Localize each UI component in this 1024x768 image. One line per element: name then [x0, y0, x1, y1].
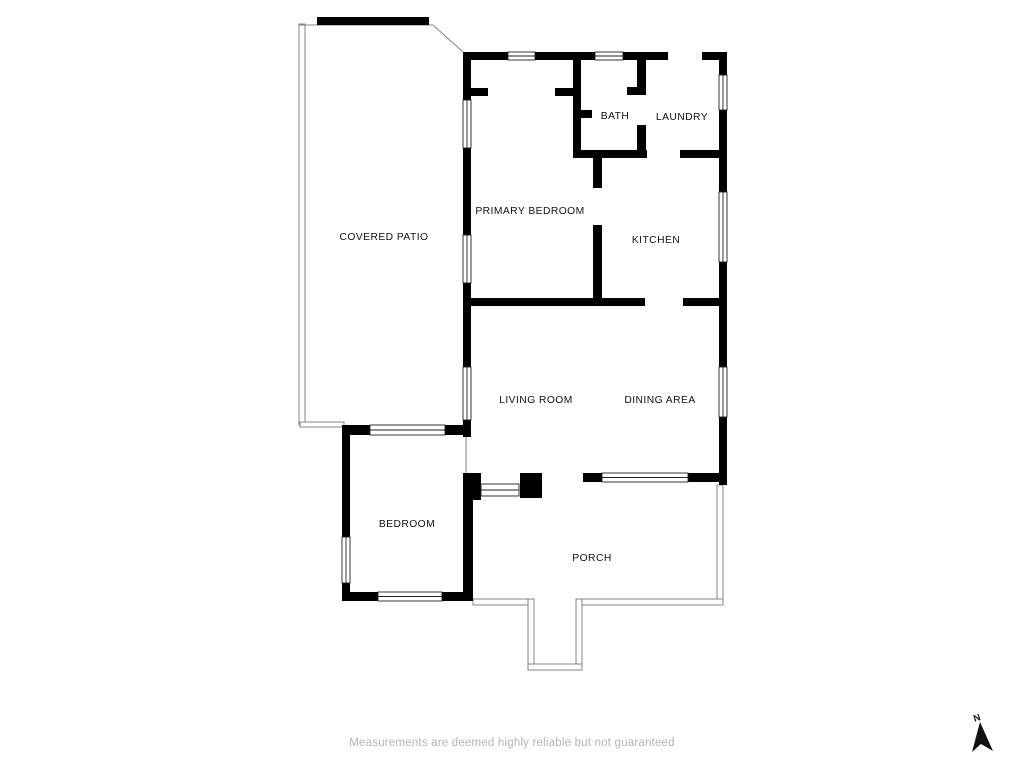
wall-segment: [593, 225, 602, 302]
wall-segment: [463, 52, 471, 100]
compass: N: [972, 712, 993, 752]
thin-outline: [528, 664, 582, 670]
wall-segment: [573, 52, 581, 158]
thin-outline: [528, 599, 534, 669]
wall-segment: [688, 473, 727, 482]
thin-outline: [300, 422, 344, 427]
wall-segment: [719, 262, 727, 367]
room-label-bedroom: BEDROOM: [379, 519, 435, 530]
floorplan-page: COVERED PATIOPRIMARY BEDROOMBATHLAUNDRYK…: [0, 0, 1024, 768]
wall-segment: [463, 283, 471, 367]
room-label-bath: BATH: [601, 111, 630, 122]
room-label-primary-bedroom: PRIMARY BEDROOM: [475, 206, 584, 217]
wall-segment: [520, 473, 542, 498]
wall-segment: [680, 150, 727, 158]
compass-n-label: N: [972, 712, 982, 725]
thin-outline: [576, 599, 582, 669]
wall-segment: [683, 298, 727, 306]
wall-segment: [342, 425, 350, 537]
wall-segment: [573, 110, 592, 118]
wall-segment: [573, 150, 647, 158]
walls-layer: [317, 17, 727, 601]
wall-segment: [445, 425, 471, 435]
room-label-covered-patio: COVERED PATIO: [340, 232, 429, 243]
thin-line: [433, 25, 463, 52]
floorplan-svg: COVERED PATIOPRIMARY BEDROOMBATHLAUNDRYK…: [0, 0, 1024, 768]
room-label-kitchen: KITCHEN: [632, 235, 680, 246]
thin-outline: [581, 599, 723, 605]
wall-segment: [535, 52, 595, 60]
wall-segment: [583, 473, 602, 482]
wall-segment: [471, 88, 488, 96]
wall-segment: [593, 158, 602, 188]
room-label-porch: PORCH: [572, 553, 611, 564]
wall-segment: [637, 52, 646, 95]
wall-segment: [463, 148, 471, 235]
wall-segment: [463, 298, 645, 306]
room-label-laundry: LAUNDRY: [656, 112, 708, 123]
wall-segment: [317, 17, 429, 25]
wall-segment: [463, 475, 473, 600]
thin-outline: [717, 485, 723, 604]
thin-outline: [299, 24, 305, 425]
wall-segment: [719, 52, 727, 75]
wall-segment: [342, 592, 378, 601]
wall-segment: [627, 87, 637, 95]
disclaimer-text: Measurements are deemed highly reliable …: [349, 737, 675, 749]
room-label-dining-area: DINING AREA: [624, 395, 695, 406]
thin-outline: [473, 599, 531, 605]
room-label-living-room: LIVING ROOM: [499, 395, 573, 406]
north-arrow-icon: [972, 722, 993, 752]
wall-segment: [555, 88, 573, 96]
